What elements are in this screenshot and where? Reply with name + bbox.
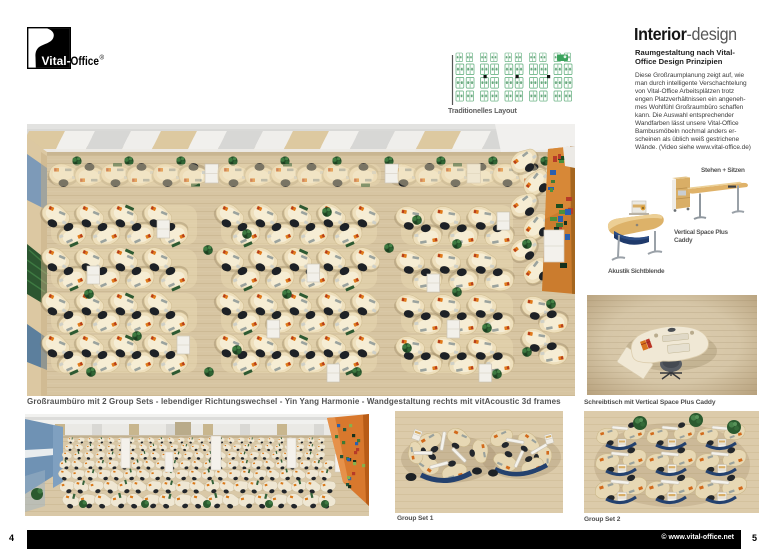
svg-text:®: ®	[100, 55, 105, 62]
svg-text:Office: Office	[71, 54, 100, 68]
svg-text:Vital-: Vital-	[42, 54, 71, 68]
